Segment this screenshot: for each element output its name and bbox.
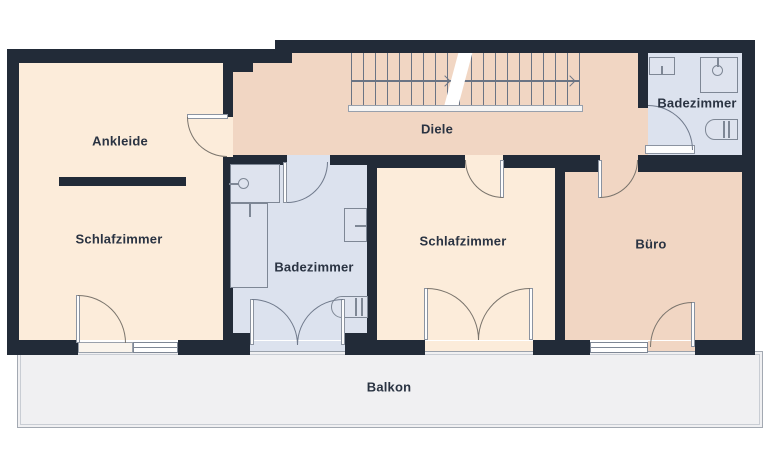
washbasin-notch-icon [355,225,367,227]
label-badezimmer-right: Badezimmer [657,96,736,111]
wall-diele-bad-b [330,155,377,165]
threshold-schlafzimmer-left-door [78,342,133,353]
wall-bad-right-left [638,42,648,108]
stair-direction-line [352,80,580,82]
stair-bottom-step [348,105,583,112]
wall-bottom-1 [7,340,78,355]
wall-buero-top-b [638,155,755,172]
shower-head-icon [238,178,249,189]
wall-left [7,49,19,355]
label-buero: Büro [635,237,666,252]
wall-ankleide-diele-upper [223,63,233,117]
wall-diele-sz-b [503,155,565,168]
wall-bottom-5 [695,340,755,355]
wall-top-right [275,40,755,53]
bathtub-faucet-icon [249,203,251,217]
window-buero [590,342,648,353]
label-ankleide: Ankleide [92,134,148,149]
window-schlafzimmer-left [133,342,178,353]
wardrobe-bar [59,177,186,186]
room-ankleide-schlafzimmer [19,63,223,340]
wall-bottom-2 [178,340,250,355]
label-schlafzimmer-left: Schlafzimmer [76,232,163,247]
wall-diele-sz-a [377,155,465,168]
label-badezimmer-middle: Badezimmer [274,260,353,275]
washbasin-right-faucet-icon [661,66,663,75]
label-schlafzimmer-middle: Schlafzimmer [420,234,507,249]
wall-right [742,40,755,355]
toilet-right-icon [705,119,738,140]
wall-step-b [253,49,292,63]
toilet-right-line-icon [723,121,725,138]
toilet-tank-line2-icon [361,298,363,316]
wall-schlafzimmer-buero [555,155,565,355]
wall-bad-schlafzimmer-mid [367,155,377,355]
wall-buero-top-a [565,155,600,172]
toilet-right-line2-icon [728,121,730,138]
toilet-tank-line-icon [355,298,357,316]
shower-arm-icon [229,183,239,185]
floorplan: Ankleide Schlafzimmer Badezimmer Diele S… [0,0,770,462]
threshold-schlafzimmer-mid-french-door [425,341,533,352]
label-diele: Diele [421,122,453,137]
shower-right-head-icon [712,65,723,76]
wall-bottom-3 [345,340,425,355]
label-balkon: Balkon [367,380,412,395]
